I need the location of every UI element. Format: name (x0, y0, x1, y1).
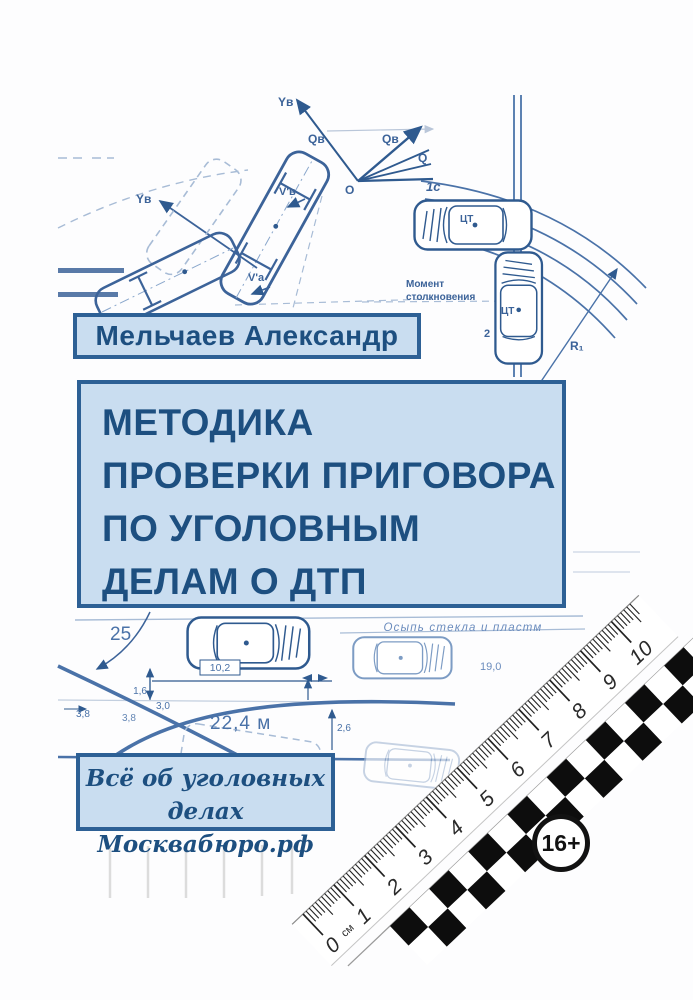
age-rating-text: 16+ (541, 830, 580, 857)
photogrammetric-scale (348, 620, 693, 1000)
age-rating-badge: 16+ (532, 814, 590, 872)
book-cover: Yв V'в V'а Yв Qв Qв Q O 1c (0, 0, 693, 1000)
